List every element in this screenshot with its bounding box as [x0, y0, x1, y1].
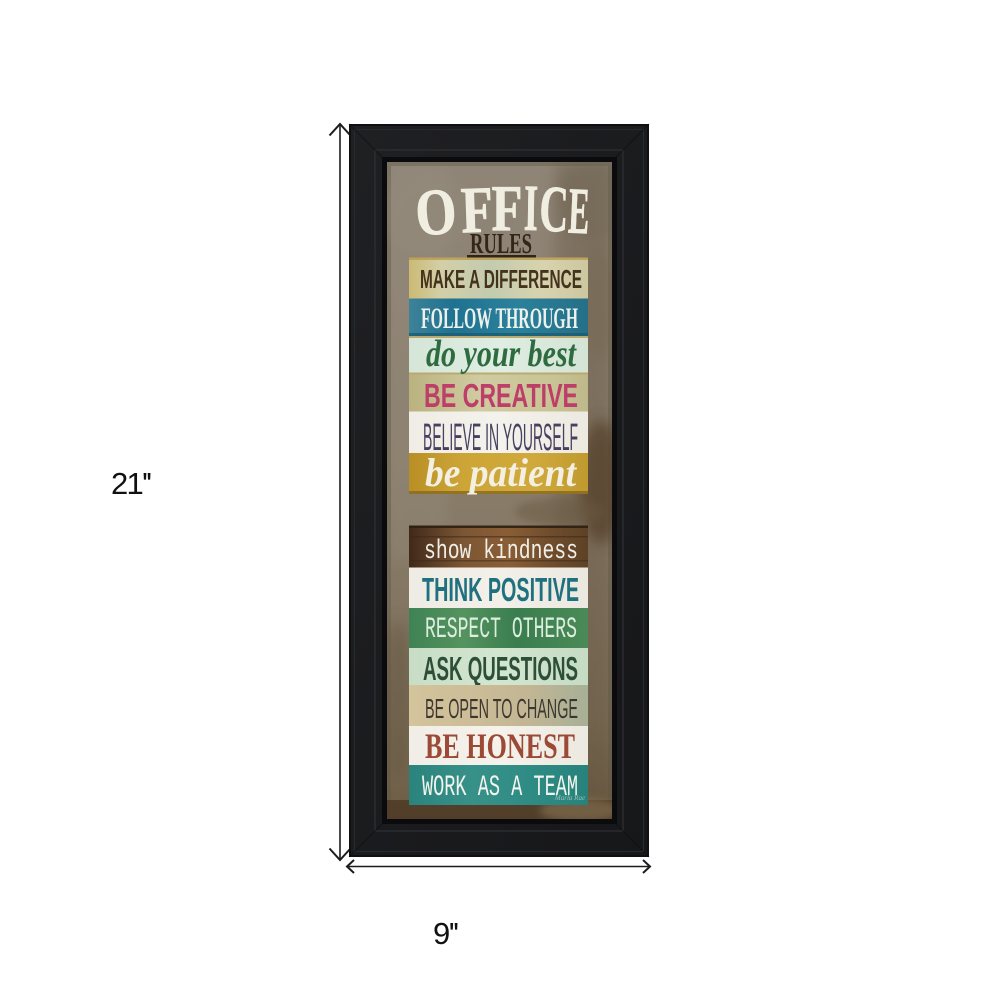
svg-text:show kindness: show kindness — [424, 537, 578, 567]
svg-text:BE HONEST: BE HONEST — [425, 726, 575, 766]
svg-text:Marla Rae: Marla Rae — [554, 794, 585, 802]
svg-text:9'': 9'' — [433, 916, 459, 951]
svg-text:C: C — [538, 173, 570, 247]
svg-text:THINK POSITIVE: THINK POSITIVE — [422, 571, 579, 608]
svg-text:BE OPEN TO CHANGE: BE OPEN TO CHANGE — [425, 693, 578, 724]
svg-text:21'': 21'' — [111, 466, 152, 501]
svg-text:do your best: do your best — [426, 333, 577, 375]
svg-text:BE CREATIVE: BE CREATIVE — [424, 377, 578, 414]
svg-text:O: O — [413, 175, 459, 251]
svg-text:be patient: be patient — [425, 450, 578, 495]
svg-text:RESPECT OTHERS: RESPECT OTHERS — [425, 613, 577, 647]
svg-text:E: E — [567, 175, 591, 249]
svg-text:MAKE A DIFFERENCE: MAKE A DIFFERENCE — [420, 264, 582, 294]
svg-text:ASK QUESTIONS: ASK QUESTIONS — [423, 650, 578, 687]
svg-text:FOLLOW THROUGH: FOLLOW THROUGH — [421, 302, 578, 335]
